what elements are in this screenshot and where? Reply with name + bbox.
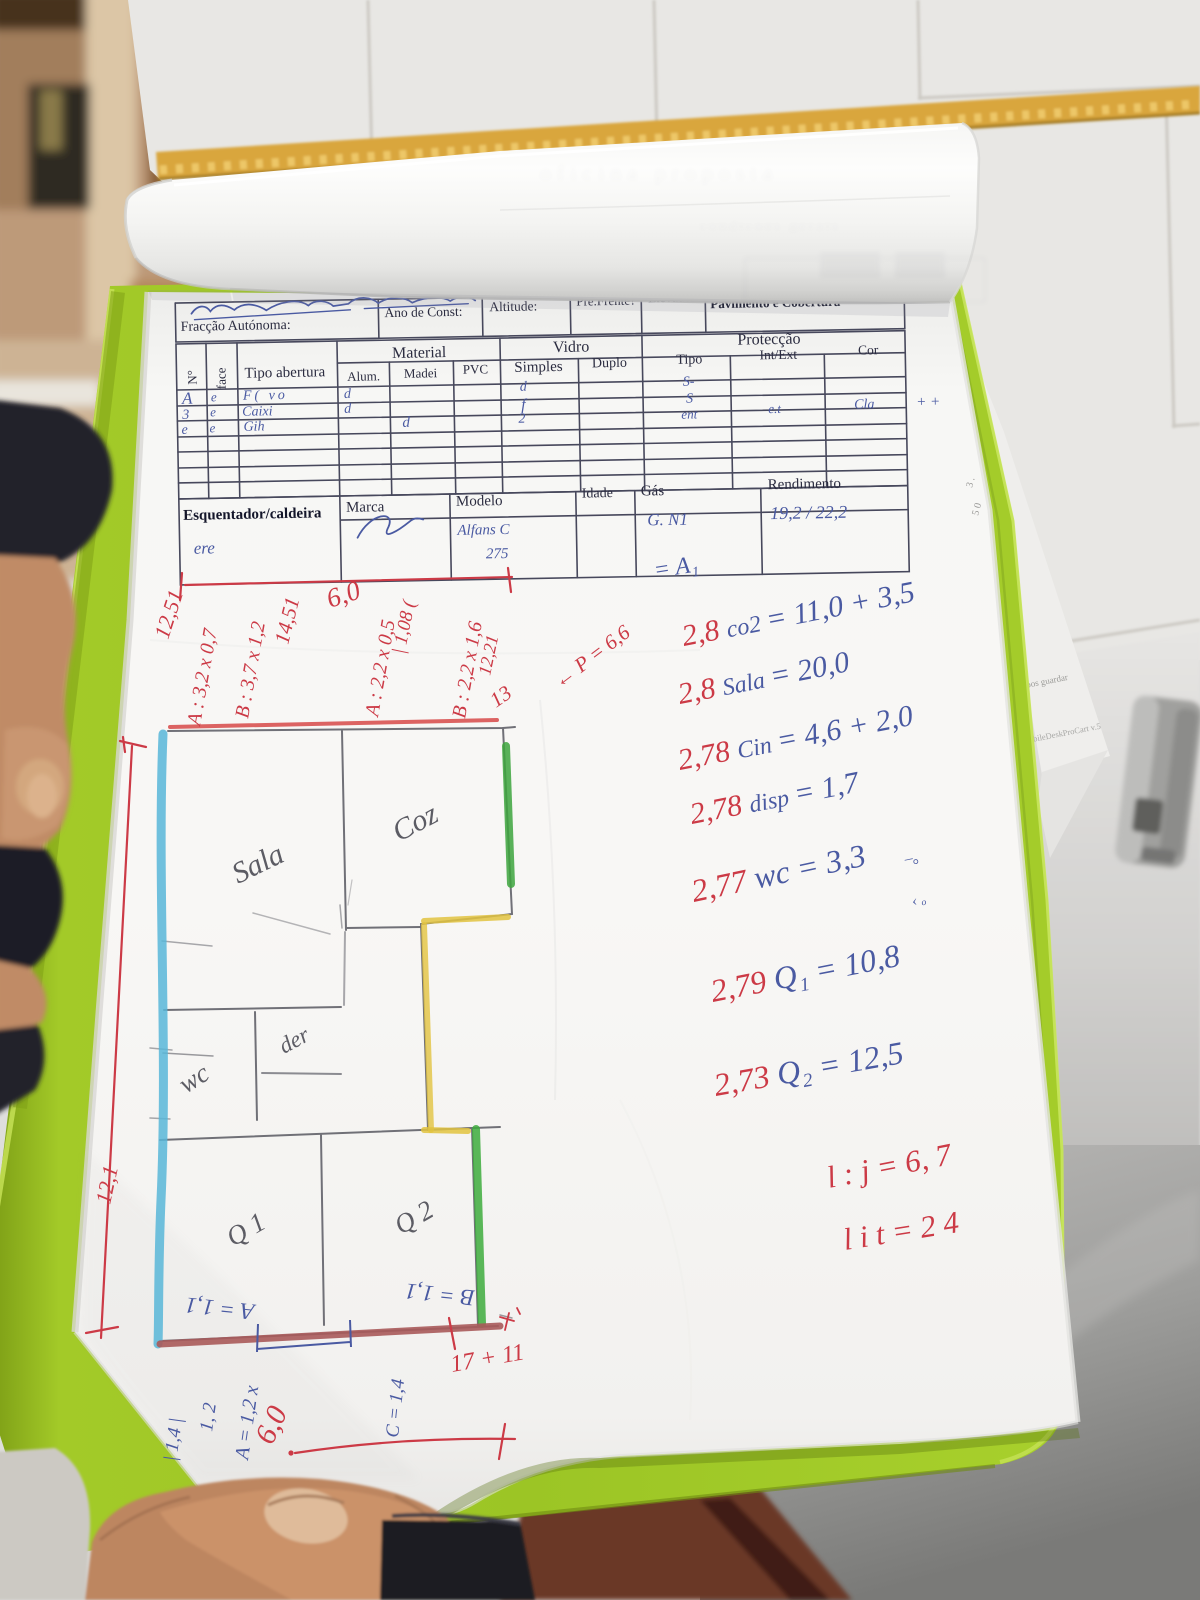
svg-text:Gás: Gás	[641, 483, 665, 499]
svg-text:e: e	[211, 389, 217, 404]
svg-text:e.t: e.t	[768, 401, 781, 416]
svg-text:Tipo: Tipo	[676, 352, 702, 367]
svg-text:Tipo abertura: Tipo abertura	[244, 364, 325, 381]
svg-text:19,2 / 22,2: 19,2 / 22,2	[770, 502, 847, 523]
svg-text:Gih: Gih	[243, 419, 264, 434]
svg-text:e: e	[209, 420, 215, 435]
svg-text:275: 275	[486, 546, 509, 562]
svg-text:2: 2	[518, 412, 525, 427]
svg-text:Alum.: Alum.	[347, 368, 380, 384]
svg-text:S-: S-	[683, 375, 695, 390]
svg-text:d: d	[344, 402, 352, 417]
svg-text:d: d	[402, 415, 410, 431]
svg-text:1, 2: 1, 2	[196, 1401, 221, 1433]
svg-text:Duplo: Duplo	[592, 356, 627, 372]
svg-text:Modelo: Modelo	[456, 493, 503, 510]
svg-text:Idade: Idade	[582, 486, 613, 502]
svg-text:Esquentador/caldeira: Esquentador/caldeira	[183, 505, 322, 524]
svg-text:S: S	[686, 392, 693, 407]
svg-text:Rendimento: Rendimento	[768, 476, 842, 493]
svg-text:condicoes gerais: condicoes gerais	[700, 219, 841, 234]
svg-text:Fracção Autónoma:: Fracção Autónoma:	[181, 318, 291, 335]
svg-text:ere: ere	[194, 538, 216, 557]
svg-text:G. N1: G. N1	[647, 510, 688, 530]
svg-text:Cla: Cla	[854, 397, 875, 412]
svg-text:Simples: Simples	[514, 359, 563, 376]
svg-text:Material: Material	[392, 344, 447, 362]
svg-text:3: 3	[181, 408, 189, 423]
svg-text:PVC: PVC	[463, 361, 489, 376]
svg-text:F( vo: F( vo	[242, 388, 288, 404]
svg-text:e: e	[210, 404, 216, 419]
svg-text:face: face	[213, 367, 228, 389]
svg-text:Marca: Marca	[346, 499, 385, 516]
svg-text:oficina proposta: oficina proposta	[540, 160, 778, 185]
svg-text:Cor: Cor	[858, 342, 879, 357]
svg-text:+ +: + +	[916, 394, 940, 410]
svg-text:Alfans C: Alfans C	[456, 522, 510, 539]
svg-text:N°: N°	[184, 370, 199, 385]
svg-text:A: A	[181, 389, 193, 408]
svg-text:Caixi: Caixi	[242, 404, 273, 420]
svg-text:Int/Ext: Int/Ext	[759, 347, 797, 363]
svg-text:ent: ent	[681, 406, 698, 421]
svg-text:Madei: Madei	[404, 365, 438, 381]
svg-text:Vidro: Vidro	[553, 338, 590, 356]
svg-text:e: e	[181, 423, 187, 438]
svg-text:d: d	[344, 387, 352, 402]
svg-text:d: d	[520, 380, 528, 395]
